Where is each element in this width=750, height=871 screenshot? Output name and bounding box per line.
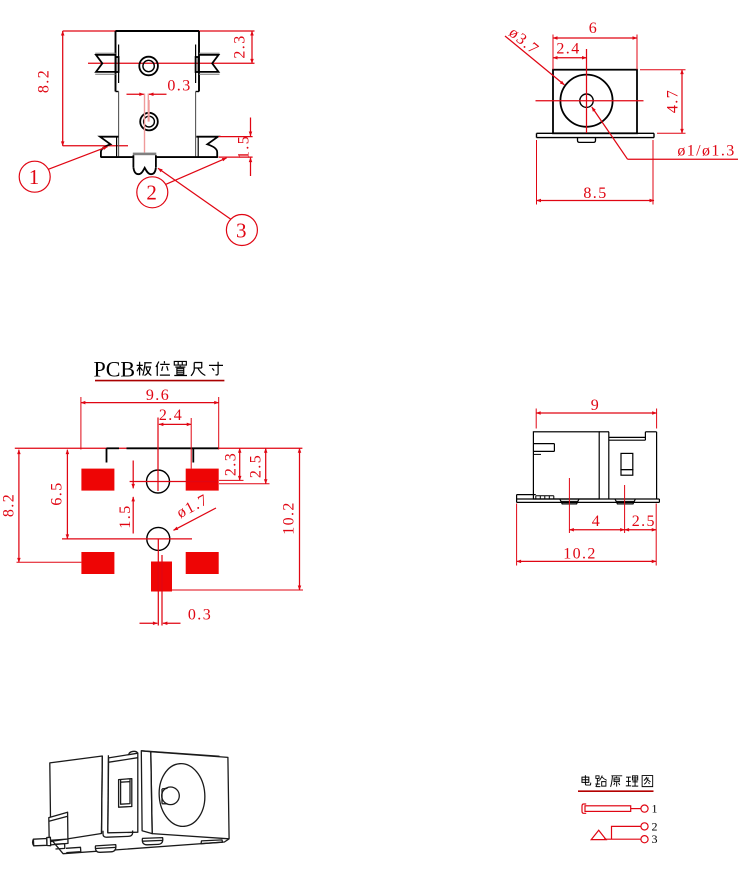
svg-text:6.5: 6.5 [49, 481, 66, 505]
svg-text:4.7: 4.7 [665, 89, 682, 113]
svg-text:0.3: 0.3 [188, 607, 212, 624]
svg-text:10.2: 10.2 [563, 546, 597, 563]
svg-text:1.5: 1.5 [117, 504, 134, 528]
svg-text:10.2: 10.2 [281, 501, 298, 535]
svg-text:8.2: 8.2 [36, 69, 53, 93]
svg-text:2.4: 2.4 [556, 41, 580, 58]
svg-text:1.5: 1.5 [236, 135, 253, 159]
svg-text:4: 4 [592, 513, 601, 530]
svg-text:0.3: 0.3 [167, 78, 191, 95]
svg-text:2.3: 2.3 [223, 452, 240, 476]
svg-text:PCB: PCB [94, 357, 136, 382]
svg-text:2.4: 2.4 [159, 407, 183, 424]
svg-text:1: 1 [29, 165, 41, 189]
svg-text:2.5: 2.5 [632, 513, 656, 530]
svg-text:2.5: 2.5 [248, 454, 265, 478]
svg-text:1: 1 [652, 802, 658, 816]
svg-text:2: 2 [146, 181, 158, 205]
svg-text:8.5: 8.5 [583, 185, 607, 202]
svg-text:9.6: 9.6 [146, 387, 170, 404]
svg-text:8.2: 8.2 [1, 493, 18, 517]
svg-text:3: 3 [652, 832, 658, 846]
svg-text:9: 9 [591, 397, 600, 414]
svg-text:ø1/ø1.3: ø1/ø1.3 [677, 143, 735, 160]
svg-text:2.3: 2.3 [232, 34, 249, 58]
svg-text:3: 3 [236, 218, 248, 242]
svg-text:6: 6 [589, 20, 598, 37]
